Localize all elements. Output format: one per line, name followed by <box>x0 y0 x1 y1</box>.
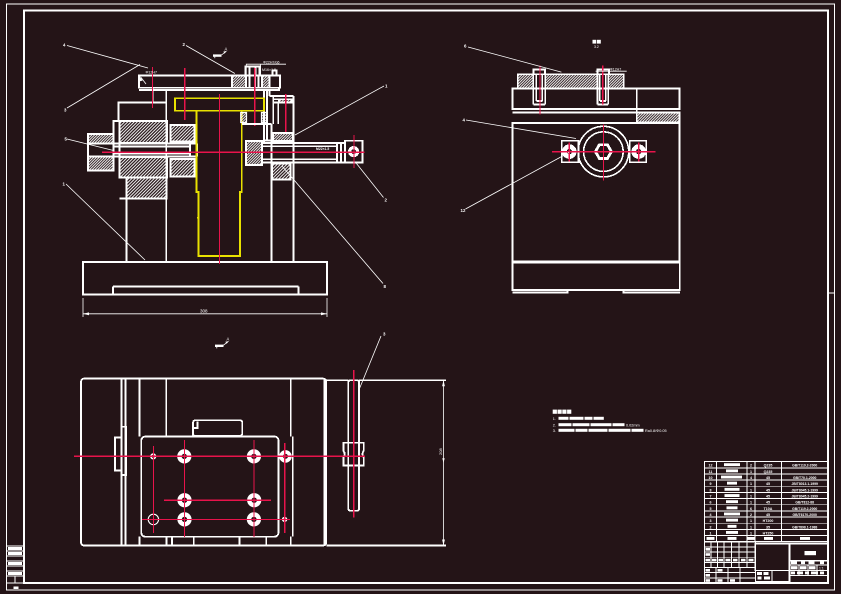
svg-text:Q235: Q235 <box>764 464 773 468</box>
svg-text:5: 5 <box>710 507 712 511</box>
svg-text:M22×1.5: M22×1.5 <box>316 147 329 151</box>
svg-text:Φ22H7/g6: Φ22H7/g6 <box>263 60 279 64</box>
svg-text:1: 1 <box>750 531 752 535</box>
svg-text:Φ12H7: Φ12H7 <box>146 70 157 74</box>
svg-text:HT250: HT250 <box>763 531 774 535</box>
svg-text:45: 45 <box>766 488 770 492</box>
svg-text:GB/T6170-2000: GB/T6170-2000 <box>793 513 817 517</box>
svg-text:308: 308 <box>200 309 208 314</box>
svg-text:1:1: 1:1 <box>819 566 824 570</box>
svg-text:1: 1 <box>750 488 752 492</box>
svg-text:GB/T119.2-2000: GB/T119.2-2000 <box>792 507 817 511</box>
svg-text:M16×1.5: M16×1.5 <box>262 68 276 72</box>
svg-text:1.: 1. <box>553 417 556 421</box>
svg-text:45: 45 <box>766 476 770 480</box>
svg-text:45: 45 <box>766 501 770 505</box>
svg-text:A: A <box>225 47 228 52</box>
svg-text:JB/T8045.1-1999: JB/T8045.1-1999 <box>792 488 819 492</box>
svg-text:208: 208 <box>438 448 443 455</box>
svg-text:8: 8 <box>710 488 712 492</box>
svg-text:1: 1 <box>710 531 712 535</box>
svg-text:1: 1 <box>750 495 752 499</box>
svg-text:11: 11 <box>709 470 713 474</box>
svg-text:JB/T8013.1-1999: JB/T8013.1-1999 <box>792 482 819 486</box>
svg-text:1: 1 <box>750 482 752 486</box>
svg-text:GB/T119.2-2000: GB/T119.2-2000 <box>792 464 817 468</box>
svg-text:12: 12 <box>461 208 466 213</box>
svg-text:0.02mm: 0.02mm <box>626 423 640 427</box>
svg-text:Q235: Q235 <box>764 470 773 474</box>
svg-text:Ra0.8/Φ0.05: Ra0.8/Φ0.05 <box>645 429 667 433</box>
svg-text:45: 45 <box>766 513 770 517</box>
svg-text:HT200: HT200 <box>763 519 774 523</box>
svg-text:3: 3 <box>710 519 712 523</box>
svg-text:45: 45 <box>766 482 770 486</box>
svg-text:4: 4 <box>750 476 752 480</box>
svg-text:1: 1 <box>750 525 752 529</box>
svg-text:2: 2 <box>750 464 752 468</box>
svg-text:7: 7 <box>710 495 712 499</box>
svg-text:6: 6 <box>710 501 712 505</box>
svg-text:4: 4 <box>710 513 712 517</box>
svg-text:10: 10 <box>709 476 713 480</box>
svg-text:3.2: 3.2 <box>594 45 599 49</box>
svg-text:T10A: T10A <box>764 507 773 511</box>
svg-text:3.: 3. <box>553 429 556 433</box>
svg-text:GB/T898.1-1988: GB/T898.1-1988 <box>792 525 817 529</box>
svg-text:45: 45 <box>766 495 770 499</box>
svg-text:JB/T8045.2-1999: JB/T8045.2-1999 <box>792 495 819 499</box>
svg-text:GB/T812-88: GB/T812-88 <box>795 501 814 505</box>
svg-text:12: 12 <box>709 464 713 468</box>
svg-text:GB/T70.1-2000: GB/T70.1-2000 <box>793 476 816 480</box>
svg-text:2.: 2. <box>553 423 556 427</box>
svg-text:1: 1 <box>750 501 752 505</box>
svg-text:A: A <box>227 337 230 342</box>
svg-text:1: 1 <box>750 470 752 474</box>
svg-text:Φ12H7: Φ12H7 <box>610 68 621 72</box>
svg-text:2: 2 <box>710 525 712 529</box>
svg-text:35: 35 <box>766 525 770 529</box>
svg-text:9: 9 <box>710 482 712 486</box>
svg-text:6: 6 <box>750 507 752 511</box>
svg-text:2: 2 <box>750 513 752 517</box>
svg-text:1: 1 <box>750 519 752 523</box>
